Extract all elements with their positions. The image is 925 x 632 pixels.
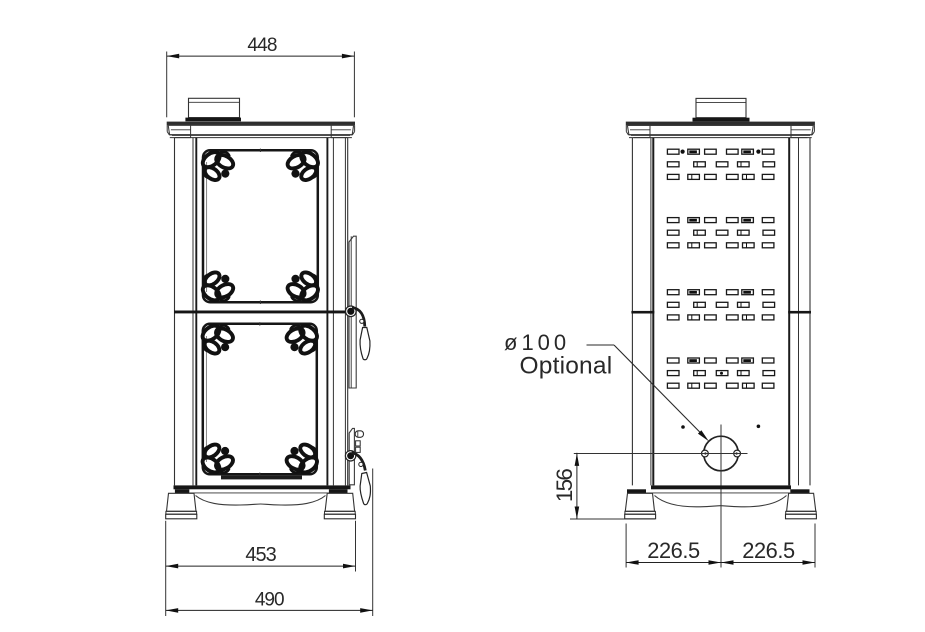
svg-text:490: 490 [255,590,284,611]
svg-text:453: 453 [245,544,276,566]
svg-text:448: 448 [247,35,277,56]
svg-text:Optional: Optional [520,353,613,380]
svg-text:156: 156 [552,469,577,502]
svg-text:ø100: ø100 [504,330,570,355]
svg-text:226.5: 226.5 [647,538,700,563]
svg-text:226.5: 226.5 [742,538,795,563]
